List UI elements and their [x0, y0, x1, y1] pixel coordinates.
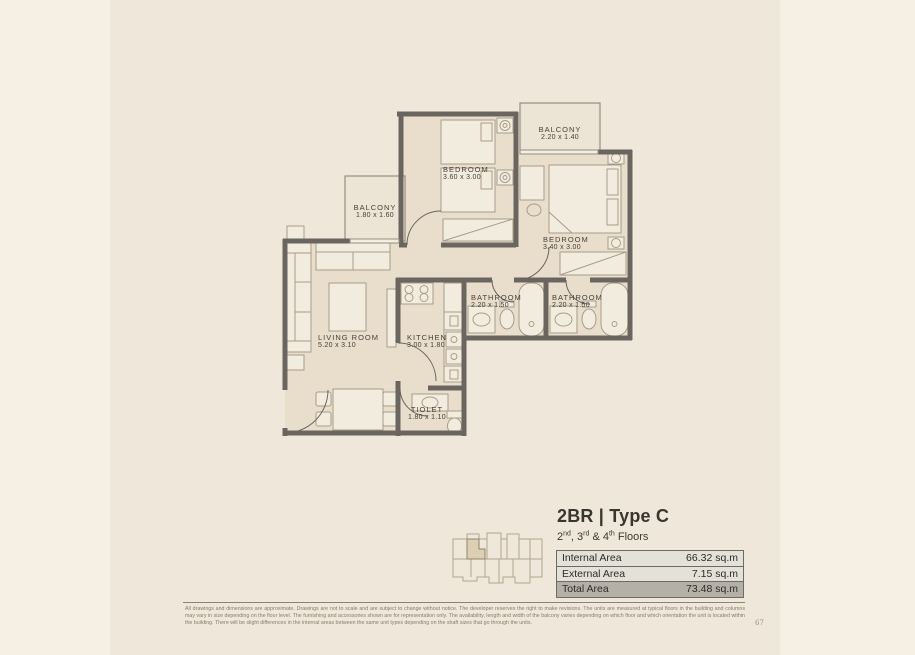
area-value: 66.32 sq.m	[686, 552, 738, 564]
floor-info-sup: nd	[563, 530, 571, 537]
room-label-bedroom-1: BEDROOM 3.60 x 3.00	[443, 165, 489, 182]
table-row-internal-area: Internal Area 66.32 sq.m	[557, 551, 743, 567]
room-label-bedroom-2: BEDROOM 3.40 x 3.00	[543, 235, 589, 252]
brochure-page: BEDROOM 3.60 x 3.00 BALCONY 2.20 x 1.40 …	[0, 0, 915, 655]
balcony-door-top-right	[520, 150, 598, 154]
room-name: KITCHEN	[407, 333, 447, 342]
room-label-kitchen: KITCHEN 3.00 x 1.80	[407, 333, 447, 350]
floor-info: 2nd, 3rd & 4th Floors	[557, 531, 648, 543]
table-row-total-area: Total Area 73.48 sq.m	[557, 582, 743, 598]
disclaimer-divider	[183, 602, 745, 603]
page-number: 67	[755, 619, 764, 627]
room-name: BALCONY	[347, 203, 403, 212]
room-dims: 3.40 x 3.00	[543, 244, 589, 252]
room-label-toilet: TIOLET 1.80 x 1.10	[398, 405, 456, 422]
room-name: BATHROOM	[471, 293, 522, 302]
room-dims: 1.80 x 1.10	[398, 414, 456, 422]
room-dims: 5.20 x 3.10	[318, 342, 379, 350]
room-dims: 3.60 x 3.00	[443, 174, 489, 182]
key-plan	[449, 527, 547, 597]
floor-info-part: Floors	[615, 531, 649, 543]
room-dims: 2.20 x 1.50	[471, 302, 522, 310]
room-dims: 1.80 x 1.60	[347, 212, 403, 220]
room-name: BATHROOM	[552, 293, 603, 302]
room-label-bathroom-1: BATHROOM 2.20 x 1.50	[471, 293, 522, 310]
room-label-balcony-top-right: BALCONY 2.20 x 1.40	[530, 125, 590, 142]
unit-title: 2BR | Type C	[557, 506, 669, 527]
room-name: LIVING ROOM	[318, 333, 379, 342]
area-table: Internal Area 66.32 sq.m External Area 7…	[556, 550, 744, 598]
disclaimer-text: All drawings and dimensions are approxim…	[185, 606, 745, 627]
area-value: 7.15 sq.m	[692, 568, 738, 580]
area-label: External Area	[562, 568, 625, 580]
table-row-external-area: External Area 7.15 sq.m	[557, 567, 743, 583]
room-dims: 2.20 x 1.50	[552, 302, 603, 310]
area-label: Total Area	[562, 583, 609, 595]
floor-info-part: , 3	[571, 531, 583, 543]
room-name: BALCONY	[530, 125, 590, 134]
area-value: 73.48 sq.m	[686, 583, 738, 595]
room-label-living-room: LIVING ROOM 5.20 x 3.10	[318, 333, 379, 350]
room-name: BEDROOM	[443, 165, 489, 174]
key-plan-highlight-unit	[467, 539, 485, 559]
room-name: BEDROOM	[543, 235, 589, 244]
room-name: TIOLET	[398, 405, 456, 414]
room-label-bathroom-2: BATHROOM 2.20 x 1.50	[552, 293, 603, 310]
balcony-door-left	[350, 239, 399, 243]
floor-info-part: & 4	[589, 531, 609, 543]
room-dims: 2.20 x 1.40	[530, 134, 590, 142]
area-label: Internal Area	[562, 552, 622, 564]
room-label-balcony-left: BALCONY 1.80 x 1.60	[347, 203, 403, 220]
room-dims: 3.00 x 1.80	[407, 342, 447, 350]
